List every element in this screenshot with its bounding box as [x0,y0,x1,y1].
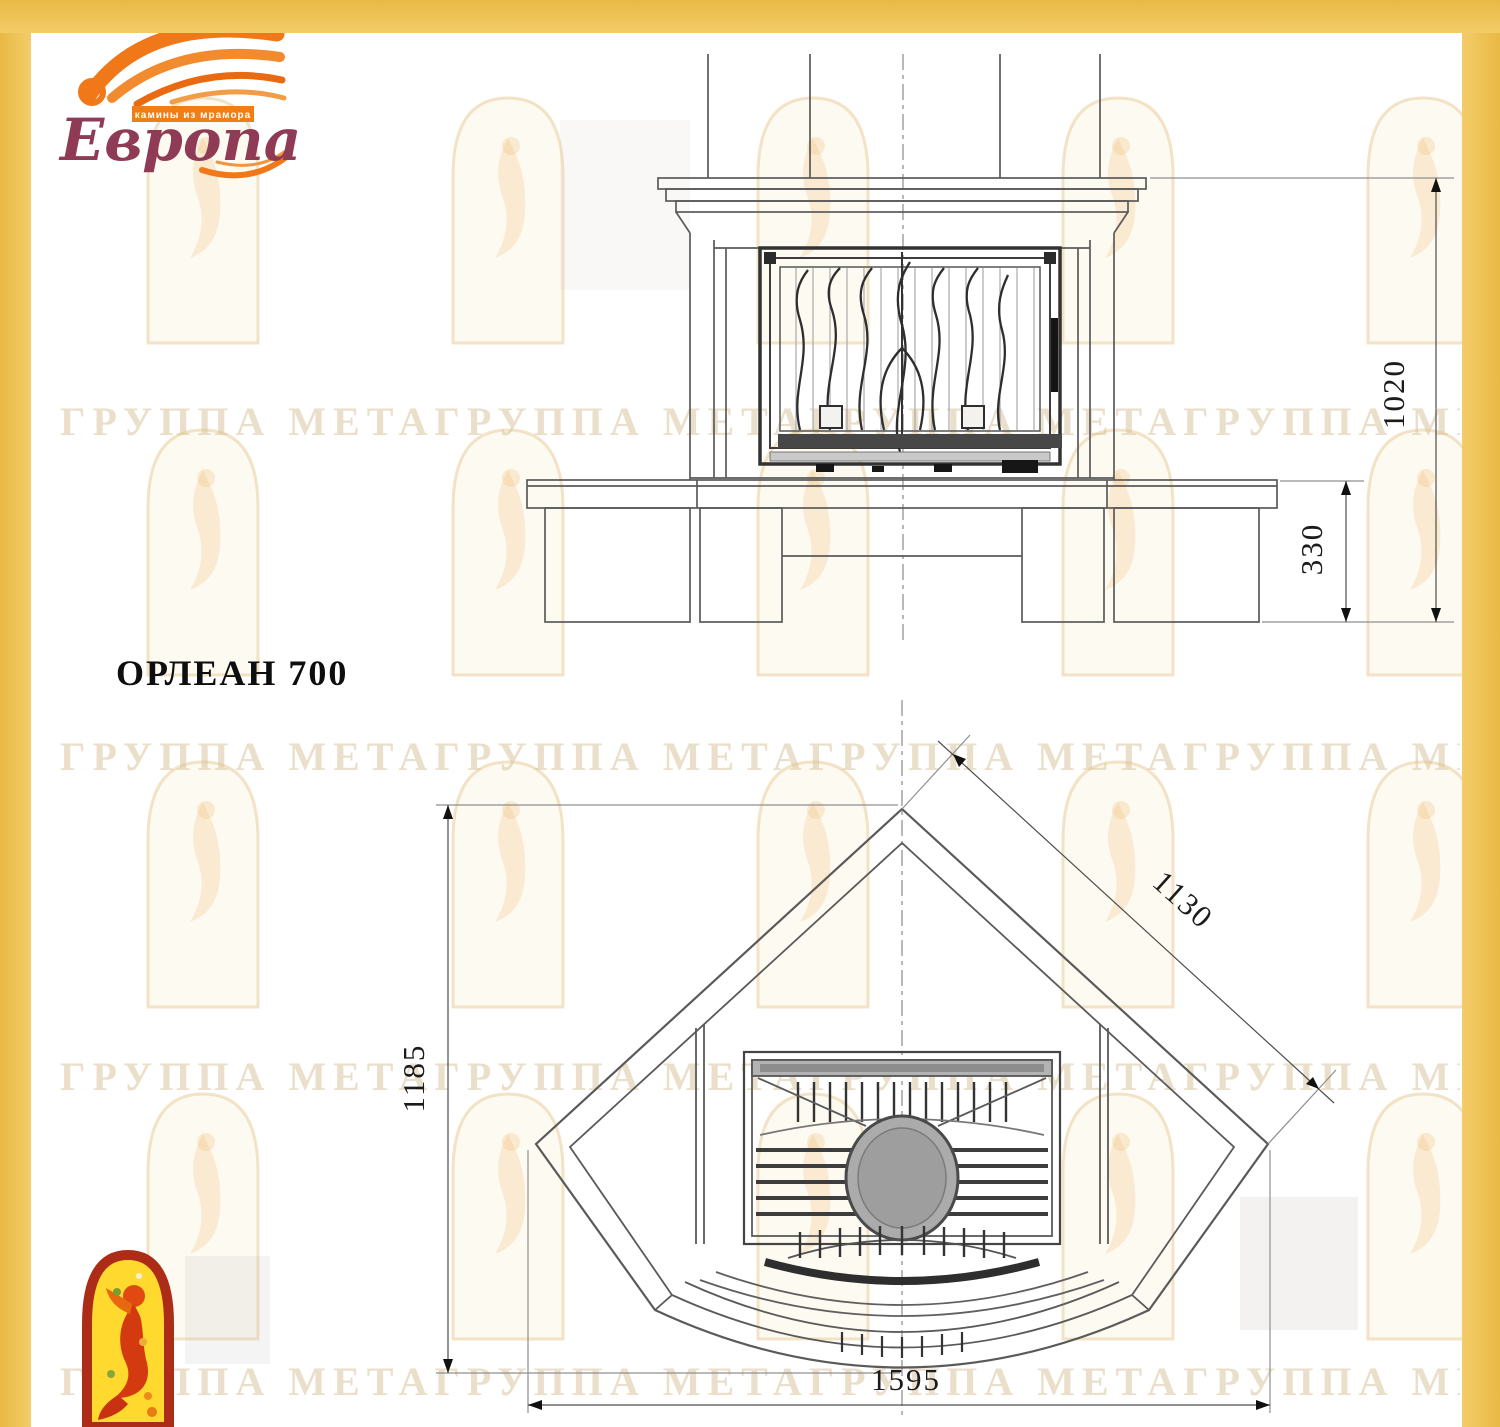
dimension-label-total-height: 1020 [1376,329,1412,459]
model-title: ОРЛЕАН 700 [116,652,348,694]
dimension-label-plan-depth: 1185 [396,1013,432,1143]
front-elevation-drawing [527,54,1277,640]
tagline-text: камины из мрамора [135,110,251,121]
dimension-label-hearth-height: 330 [1294,484,1330,614]
page-border-left [0,0,31,1427]
page-border-right [1462,0,1500,1427]
plan-view-dimension-arrows [443,754,1319,1410]
page-border-top [0,0,1500,33]
fireplace-technical-drawing [0,0,1500,1427]
plan-view-drawing [536,700,1268,1418]
ash-vents [816,460,1038,473]
firebird-emblem [82,1246,174,1427]
dimension-label-plan-width: 1595 [841,1362,971,1398]
